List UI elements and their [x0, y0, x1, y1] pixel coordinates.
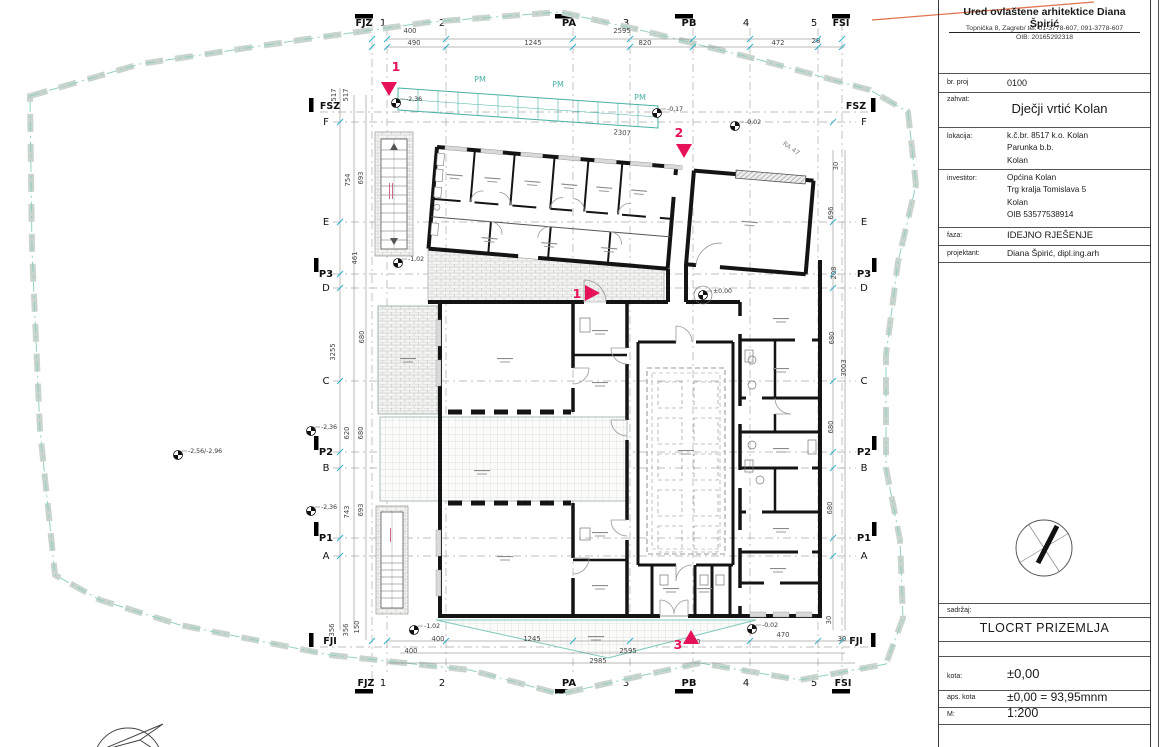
courtyard-grid-cell — [694, 418, 718, 444]
office-address: Topnička 8, Zagreb/ tel: 01-3778-607, 09… — [943, 25, 1146, 32]
dimension-text: 30 — [838, 635, 847, 643]
field-value-sadrzaj: TLOCRT PRIZEMLJA — [939, 621, 1150, 635]
courtyard-grid-cell — [658, 454, 682, 480]
section-bar — [872, 522, 877, 536]
grid-label: 1 — [380, 678, 386, 689]
dimension-text: 1245 — [524, 39, 541, 47]
facade-bar — [355, 14, 373, 19]
section-bar — [675, 14, 693, 19]
field-value-investitor: Općina Kolan Trg kralja Tomislava 5 Kola… — [1007, 172, 1086, 221]
grid-label: A — [323, 551, 330, 562]
elevation-marker: -1,02 — [394, 256, 425, 268]
room-label-mark — [634, 193, 644, 195]
facade-label: FJI — [323, 636, 337, 647]
grid-label: 4 — [743, 678, 749, 689]
dim-tick — [830, 119, 836, 125]
courtyard-grid-cell — [694, 382, 718, 408]
grid-label: P3 — [319, 269, 333, 280]
grid-label: F — [861, 117, 867, 128]
room-label-mark — [599, 190, 609, 192]
site-boundary — [30, 12, 916, 694]
dimension-text: 693 — [357, 504, 365, 517]
room-label-mark — [449, 178, 459, 180]
grid-label: 2 — [439, 678, 445, 689]
courtyard-grid-cell — [694, 490, 718, 516]
facade-bar — [309, 98, 314, 112]
grid-label: PA — [562, 18, 576, 29]
dimension-text: 517 — [330, 89, 338, 102]
room-label-mark — [497, 556, 513, 557]
dimension-text: 517 — [342, 89, 350, 102]
field-value-apskota: ±0,00 = 93,95mnm — [1007, 690, 1107, 704]
room-label-mark — [592, 532, 608, 533]
elevation-marker: -2,56/-2,96 — [174, 448, 223, 460]
grid-label: P2 — [319, 447, 333, 458]
dimension-text: 470 — [777, 631, 790, 639]
entrance-number: 3 — [674, 637, 683, 652]
section-bar — [872, 436, 877, 450]
entrance-number: 1 — [392, 59, 401, 74]
room-label-mark — [595, 589, 605, 590]
facade-label: FSZ — [846, 101, 866, 112]
north-needle-icon — [1038, 526, 1057, 563]
field-label-projektant: projektant: — [947, 250, 980, 257]
grid-label: PB — [682, 18, 697, 29]
room-label-mark — [773, 528, 789, 529]
room-label-mark — [776, 372, 786, 373]
courtyard-grid-cell — [658, 490, 682, 516]
elevation-marker: -2,36 — [307, 504, 338, 516]
facade-bar — [309, 633, 314, 647]
room-label-mark — [500, 362, 510, 363]
grid-label: E — [861, 217, 867, 228]
north-symbol-partial — [94, 724, 163, 747]
misc-label: RA 47 — [781, 140, 801, 157]
grid-label: P3 — [857, 269, 871, 280]
elevation-value: -0,17 — [667, 106, 683, 113]
room-label-mark — [773, 318, 789, 319]
dimension-text: 356 — [342, 624, 350, 637]
elevation-markers: -2,36-1,02-1,02-2,56/-2,96-2,36-2,36-0,1… — [174, 96, 779, 635]
room-label-mark — [595, 536, 605, 537]
room-label-mark — [477, 474, 487, 475]
dimension-text: 2595 — [613, 27, 630, 35]
room-label-mark — [773, 448, 789, 449]
grid-label: PA — [562, 678, 576, 689]
elevation-marker: -0,17 — [653, 106, 684, 118]
field-label-zahvat: zahvat: — [947, 96, 970, 103]
room-label-mark — [595, 386, 605, 387]
sheet-edge — [1158, 0, 1159, 747]
room-label-mark — [678, 450, 694, 451]
elevation-value: -1,02 — [424, 623, 440, 630]
elevation-value: -1,02 — [408, 256, 424, 263]
grid-label: A — [861, 551, 868, 562]
room-label-mark — [773, 572, 783, 573]
room-label-mark — [500, 560, 510, 561]
elevation-value: -2,36 — [321, 504, 337, 511]
field-label-brproj: br. proj — [947, 79, 968, 86]
title-block: Ured ovlaštene arhitektice Diana Špirić … — [938, 0, 1151, 747]
facade-bar — [832, 689, 850, 694]
grid-label: 5 — [811, 18, 817, 29]
facade-bar — [871, 633, 876, 647]
dimension-text: 400 — [432, 635, 445, 643]
kitchen-window-strip — [735, 170, 805, 184]
elevation-value: -0,02 — [745, 119, 761, 126]
elevation-value: -2,36 — [406, 96, 422, 103]
room-label-mark — [592, 585, 608, 586]
room-label-mark — [745, 225, 755, 227]
room-label-mark — [681, 454, 691, 455]
grid-label: D — [860, 283, 868, 294]
dimension-text: 3003 — [840, 359, 848, 376]
section-bar — [872, 258, 877, 272]
room-label-mark — [776, 452, 786, 453]
parking-labels: PMPMPMRA 47 — [474, 75, 801, 157]
dimension-text: 150 — [353, 621, 361, 634]
courtyard-grid-cell — [694, 454, 718, 480]
dimension-text: 680 — [357, 427, 365, 440]
field-value-mjerilo: 1:200 — [1007, 706, 1038, 720]
field-value-lokacija: k.č.br. 8517 k.o. Kolan Parunka b.b. Kol… — [1007, 130, 1088, 167]
room-label-mark — [487, 181, 497, 183]
grid-label: C — [323, 376, 330, 387]
office-oib: OIB: 20165292318 — [943, 34, 1146, 41]
room-label-mark — [403, 362, 413, 363]
room-label-mark — [485, 177, 501, 179]
terrace-west — [378, 306, 438, 414]
facade-bar — [832, 14, 850, 19]
entrance-arrow-icon — [676, 144, 692, 158]
grid-label: D — [322, 283, 330, 294]
courtyard-grid-cell — [694, 526, 718, 552]
courtyard-atrium — [647, 368, 725, 554]
room-label-mark — [527, 184, 537, 186]
field-label-investitor: investitor: — [947, 175, 977, 182]
external-ramp — [376, 506, 408, 614]
room-label-mark — [776, 532, 786, 533]
dimension-text: 680 — [827, 421, 835, 434]
field-label-lokacija: lokacija: — [947, 133, 972, 140]
dimension-text: 400 — [404, 27, 417, 35]
grid-label: E — [323, 217, 329, 228]
window-sills — [444, 146, 805, 184]
section-bar — [314, 522, 319, 536]
field-value-zahvat: Dječji vrtić Kolan — [979, 101, 1140, 116]
room-label-mark — [595, 334, 605, 335]
elevation-marker: -0,02 — [731, 119, 762, 131]
room-label-mark — [696, 588, 712, 589]
room-label-mark — [561, 184, 577, 186]
room-label-mark — [474, 470, 490, 471]
dimension-text: 620 — [343, 427, 351, 440]
room-label-mark — [524, 180, 540, 182]
field-label-apskota: aps. kota — [947, 694, 975, 701]
section-bar — [675, 689, 693, 694]
dimension-text: 2307 — [613, 128, 631, 137]
elevation-value: -2,56/-2,96 — [188, 448, 222, 455]
dimension-text: 680 — [828, 332, 836, 345]
room-label-mark — [699, 592, 709, 593]
pm-label: PM — [634, 93, 646, 102]
room-label-mark — [447, 174, 463, 176]
courtyard-grid-cell — [658, 382, 682, 408]
facade-label: FJI — [849, 636, 863, 647]
terrace-covered — [380, 417, 627, 501]
section-bar — [314, 436, 319, 450]
facade-bar — [871, 98, 876, 112]
grid-label: P2 — [857, 447, 871, 458]
grid-label: B — [861, 463, 868, 474]
room-label-mark — [770, 568, 786, 569]
pm-label: PM — [474, 75, 486, 84]
dimension-text: 693 — [357, 172, 365, 185]
room-label-mark — [666, 592, 676, 593]
room-label-mark — [591, 640, 601, 641]
facade-label: FSI — [833, 18, 850, 29]
field-value-kota: ±0,00 — [1007, 666, 1039, 681]
dimension-text: 461 — [351, 252, 359, 265]
room-label-mark — [588, 636, 604, 637]
dimension-text: 490 — [408, 39, 421, 47]
section-bar — [314, 258, 319, 272]
dimension-text: 754 — [344, 174, 352, 187]
external-staircase — [375, 132, 413, 256]
facade-bar — [355, 689, 373, 694]
north-compass — [1001, 505, 1087, 591]
facade-label: FSI — [835, 678, 852, 689]
grid-label: P1 — [857, 533, 871, 544]
elevation-value: -2,36 — [321, 424, 337, 431]
grid-label: P1 — [319, 533, 333, 544]
field-label-sadrzaj: sadržaj: — [947, 607, 972, 614]
room-label-mark — [592, 330, 608, 331]
elevation-marker: -2,36 — [392, 96, 423, 108]
elevation-value: -0,02 — [762, 622, 778, 629]
grid-label: 4 — [743, 18, 749, 29]
drawing-sheet: 1122PAPA33PBPB4455FJZFJZFSIFSIFFEEP3P3DD… — [0, 0, 1162, 747]
field-value-faza: IDEJNO RJEŠENJE — [1007, 230, 1093, 241]
dimension-text: 2985 — [589, 657, 606, 665]
grid-label: C — [861, 376, 868, 387]
room-label-mark — [631, 189, 647, 191]
room-label-mark — [776, 322, 786, 323]
field-value-brproj: 0100 — [1007, 78, 1027, 88]
room-label-mark — [497, 358, 513, 359]
terrace-south — [436, 620, 756, 658]
courtyard-grid-cell — [658, 526, 682, 552]
dimension-text: 400 — [405, 647, 418, 655]
entrance-number: 1 — [573, 286, 582, 301]
elevation-value: ±0,00 — [713, 288, 732, 295]
entrance-number: 2 — [675, 125, 684, 140]
dimension-text: 30 — [832, 162, 840, 171]
dimension-text: 680 — [826, 502, 834, 515]
room-label-mark — [663, 588, 679, 589]
field-label-mjerilo: M: — [947, 711, 955, 718]
dimension-text: 356 — [328, 624, 336, 637]
elevation-marker: -0,02 — [748, 622, 779, 634]
field-label-faza: faza: — [947, 232, 962, 239]
facade-label: FJZ — [358, 678, 375, 689]
grid-label: F — [323, 117, 329, 128]
field-value-projektant: Diana Špirić, dipl.ing.arh — [1007, 248, 1099, 258]
dimension-text: 696 — [827, 207, 835, 220]
room-label-mark — [773, 368, 789, 369]
dimension-text: 472 — [772, 39, 785, 47]
room-label-mark — [596, 186, 612, 188]
dimension-text: 30 — [825, 616, 833, 625]
courtyard-grid-cell — [658, 418, 682, 444]
dimension-text: 3255 — [329, 343, 337, 360]
elevation-marker: -1,02 — [410, 623, 441, 635]
pm-label: PM — [552, 80, 564, 89]
room-label-mark — [564, 187, 574, 189]
facade-label: FSZ — [320, 101, 340, 112]
field-label-kota: kota: — [947, 673, 962, 680]
grid-label: PB — [682, 678, 697, 689]
entrance-arrow-icon — [381, 82, 397, 96]
dimension-text: 680 — [358, 331, 366, 344]
elevation-marker: -2,36 — [307, 424, 338, 436]
dimension-text: 2595 — [619, 647, 636, 655]
room-label-mark — [592, 382, 608, 383]
grid-label: B — [323, 463, 330, 474]
dimension-text: 1245 — [523, 635, 540, 643]
dimension-text: 743 — [343, 506, 351, 519]
room-label-mark — [400, 358, 416, 359]
dimension-text: 820 — [639, 39, 652, 47]
